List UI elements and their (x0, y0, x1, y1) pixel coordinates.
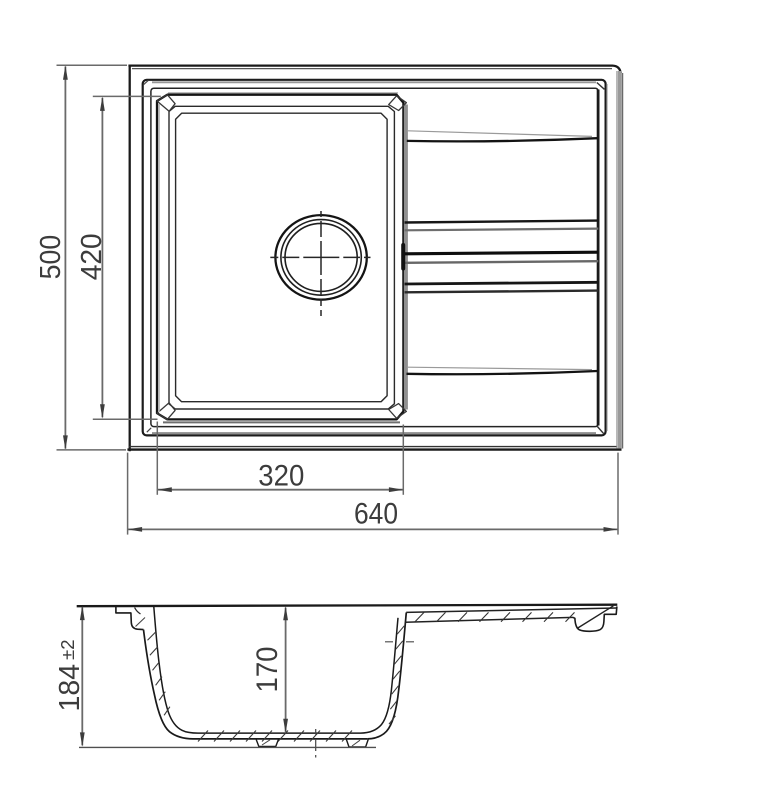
svg-text:500: 500 (35, 235, 67, 280)
svg-text:420: 420 (76, 233, 108, 280)
svg-text:170: 170 (251, 647, 284, 693)
svg-text:320: 320 (258, 459, 304, 492)
svg-text:640: 640 (354, 497, 398, 530)
